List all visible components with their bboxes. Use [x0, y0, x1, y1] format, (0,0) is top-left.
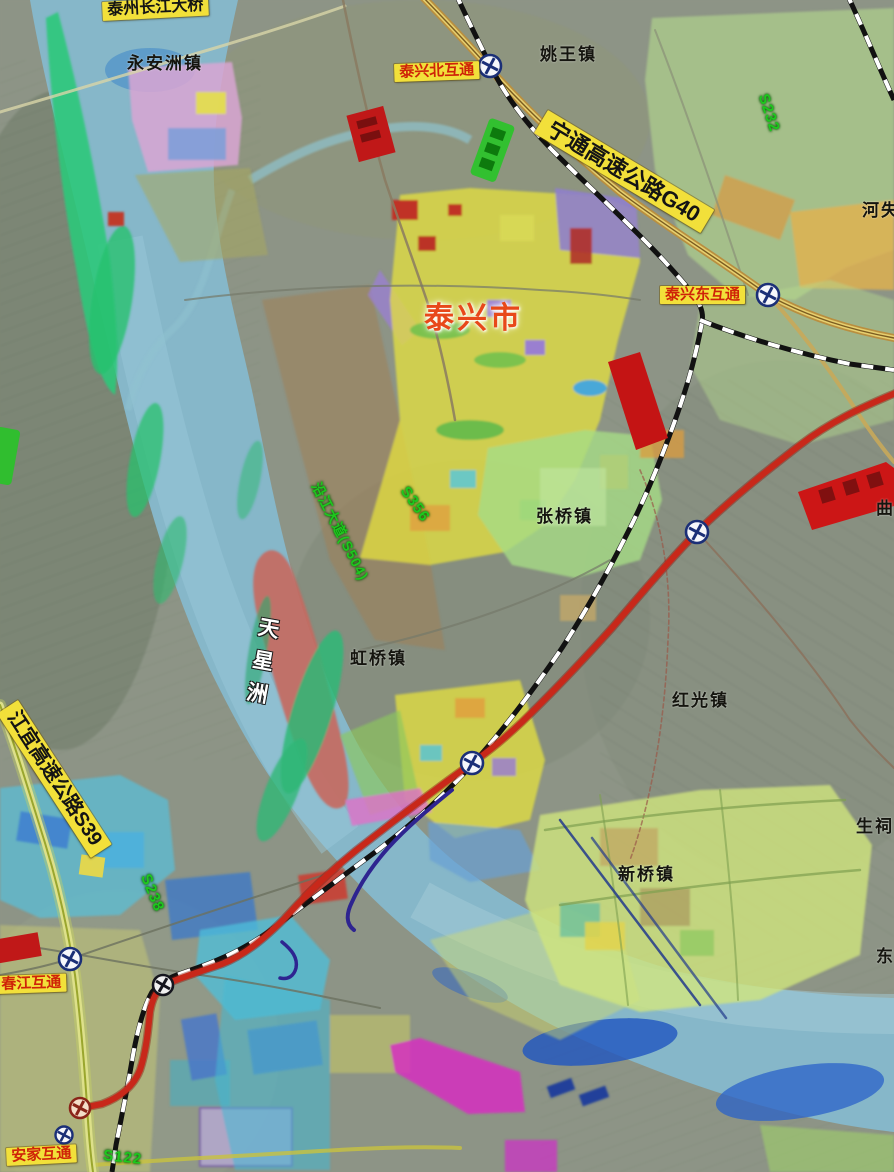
label-taixing-east-interchange: 泰兴东互通	[660, 286, 745, 304]
label-town-qu: 曲	[876, 500, 894, 518]
interchange-icon	[756, 283, 780, 307]
label-town-dong: 东	[876, 948, 894, 966]
label-town-zhangqiao: 张桥镇	[536, 508, 593, 526]
label-chunjiang-interchange: 春江互通	[0, 974, 67, 994]
label-town-hongguang: 红光镇	[672, 692, 729, 710]
interchange-icon	[460, 751, 484, 775]
label-town-yonganzhou: 永安洲镇	[127, 55, 203, 73]
interchange-icon	[685, 520, 709, 544]
label-taixing-north-interchange: 泰兴北互通	[394, 61, 480, 82]
label-town-yaowang: 姚王镇	[540, 46, 597, 64]
interchange-icon	[478, 54, 502, 78]
planning-map: 泰州长江大桥 永安洲镇 泰兴北互通 姚王镇 宁通高速公路G40 S232 河失 …	[0, 0, 894, 1172]
interchange-icon	[58, 947, 82, 971]
label-town-shengci: 生祠	[856, 818, 894, 836]
interchange-icon	[55, 1126, 74, 1145]
interchange-icon	[152, 974, 174, 996]
label-anjia-interchange: 安家互通	[6, 1144, 77, 1165]
label-taixing-city: 泰兴市	[424, 303, 523, 335]
label-town-xinqiao: 新桥镇	[618, 866, 675, 884]
yellow-marker-small	[79, 854, 106, 877]
map-canvas	[0, 0, 894, 1172]
interchange-icon-red	[69, 1097, 91, 1119]
label-town-hongqiao: 虹桥镇	[350, 650, 407, 668]
label-town-heshi: 河失	[862, 202, 894, 220]
